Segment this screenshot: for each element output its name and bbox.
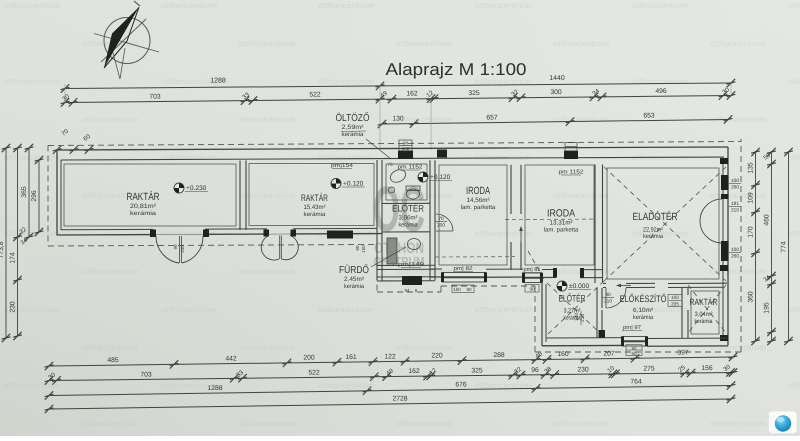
svg-text:lam. parketta: lam. parketta [461, 204, 496, 211]
svg-text:657: 657 [486, 114, 498, 121]
svg-text:1288: 1288 [210, 78, 226, 85]
svg-text:15,43m²: 15,43m² [304, 204, 326, 211]
svg-text:kerámia: kerámia [304, 211, 327, 218]
svg-text:200: 200 [437, 223, 445, 229]
svg-text:2,45m²: 2,45m² [344, 276, 364, 283]
svg-text:IRODA: IRODA [547, 208, 575, 220]
svg-text:94: 94 [404, 288, 410, 293]
svg-text:1440: 1440 [549, 75, 565, 82]
svg-text:109: 109 [748, 192, 755, 204]
svg-text:288: 288 [493, 352, 505, 359]
svg-text:325: 325 [468, 90, 480, 97]
svg-text:205: 205 [671, 302, 679, 308]
svg-text:60: 60 [355, 245, 360, 251]
svg-text:161: 161 [345, 354, 357, 361]
svg-text:210: 210 [731, 208, 739, 214]
svg-text:150: 150 [453, 287, 461, 292]
svg-text:kerámia: kerámia [344, 283, 365, 290]
svg-text:442: 442 [225, 355, 237, 362]
svg-text:260: 260 [731, 254, 739, 260]
svg-text:162: 162 [406, 91, 418, 98]
svg-text:90: 90 [529, 287, 535, 292]
svg-text:lam. parketta: lam. parketta [544, 227, 579, 234]
svg-text:14,56m²: 14,56m² [466, 197, 489, 204]
svg-text:296: 296 [31, 190, 38, 202]
svg-text:ELADÓTÉR: ELADÓTÉR [633, 210, 678, 223]
svg-text:397: 397 [677, 349, 689, 356]
svg-text:300: 300 [550, 89, 562, 96]
svg-text:pm| 82: pm| 82 [454, 265, 473, 272]
svg-text:230: 230 [577, 366, 589, 373]
svg-text:pm| 81: pm| 81 [524, 266, 541, 273]
svg-text:pm 1152: pm 1152 [398, 165, 423, 171]
svg-text:703: 703 [140, 371, 152, 378]
svg-text:496: 496 [655, 88, 667, 95]
svg-text:182: 182 [402, 146, 410, 151]
svg-text:150: 150 [361, 245, 366, 253]
svg-text:460: 460 [764, 214, 771, 226]
svg-text:275: 275 [643, 365, 655, 372]
svg-text:ÖLTÖZŐ: ÖLTÖZŐ [336, 112, 370, 124]
svg-text:210: 210 [604, 299, 612, 305]
svg-text:6,10m²: 6,10m² [633, 307, 653, 314]
svg-text:90: 90 [466, 287, 472, 292]
svg-text:75: 75 [387, 162, 393, 167]
svg-text:kerámia: kerámia [633, 314, 654, 321]
svg-text:200: 200 [303, 354, 315, 361]
svg-text:325: 325 [471, 367, 483, 374]
svg-text:162: 162 [408, 368, 420, 375]
svg-text:3,27m²: 3,27m² [564, 308, 581, 315]
svg-text:130: 130 [392, 116, 404, 123]
svg-text:653: 653 [643, 112, 655, 119]
svg-text:ELŐKÉSZÍTŐ: ELŐKÉSZÍTŐ [620, 293, 667, 305]
svg-text:20,81m²: 20,81m² [130, 203, 156, 210]
svg-text:3,06m²: 3,06m² [399, 215, 418, 222]
svg-text:pm|154: pm|154 [331, 162, 353, 169]
svg-text:pm 1152: pm 1152 [559, 170, 584, 176]
svg-text:RAKTÁR: RAKTÁR [690, 297, 718, 307]
svg-text:195: 195 [764, 302, 771, 314]
svg-text:FÜRDŐ: FÜRDŐ [339, 264, 369, 276]
svg-text:96: 96 [531, 367, 539, 374]
svg-text:220: 220 [431, 353, 443, 360]
svg-text:IRODA: IRODA [466, 185, 490, 197]
svg-text:135: 135 [748, 162, 755, 174]
svg-text:60: 60 [631, 351, 637, 356]
svg-text:240: 240 [180, 245, 185, 253]
svg-text:kerámia: kerámia [564, 315, 582, 322]
svg-text:94: 94 [403, 141, 409, 146]
svg-text:230: 230 [10, 301, 17, 313]
svg-text:773,8: 773,8 [0, 241, 5, 258]
svg-text:pm| 97: pm| 97 [623, 324, 641, 331]
svg-text:ELŐTÉR: ELŐTÉR [392, 203, 424, 215]
svg-text:2728: 2728 [392, 396, 407, 403]
svg-text:2,59m²: 2,59m² [342, 124, 364, 131]
svg-text:1288: 1288 [207, 385, 222, 392]
svg-text:+0.230: +0.230 [186, 185, 207, 192]
svg-text:122: 122 [384, 353, 396, 360]
svg-text:pm|149: pm|149 [398, 261, 424, 268]
svg-text:RAKTÁR: RAKTÁR [301, 192, 328, 204]
svg-text:485: 485 [107, 357, 119, 364]
svg-text:156: 156 [701, 365, 713, 372]
svg-text:703: 703 [149, 93, 161, 100]
svg-text:kerámia: kerámia [695, 318, 714, 325]
svg-text:207: 207 [603, 350, 615, 357]
svg-text:174: 174 [10, 252, 17, 264]
svg-text:kerámia: kerámia [130, 210, 157, 217]
svg-text:ELŐTÉR: ELŐTÉR [559, 293, 586, 305]
svg-text:360: 360 [748, 291, 755, 303]
svg-text:3,04m²: 3,04m² [695, 311, 713, 318]
svg-text:170: 170 [748, 226, 755, 238]
svg-text:kerámia: kerámia [399, 222, 419, 229]
svg-text:676: 676 [455, 381, 467, 388]
svg-text:22,92m²: 22,92m² [643, 227, 663, 234]
svg-text:RAKTÁR: RAKTÁR [127, 190, 160, 203]
svg-text:522: 522 [309, 92, 321, 99]
svg-text:kerámia: kerámia [342, 131, 365, 138]
svg-text:522: 522 [308, 369, 320, 376]
svg-text:365: 365 [21, 186, 28, 198]
svg-text:±0.000: ±0.000 [569, 283, 589, 290]
svg-text:+0.120: +0.120 [430, 174, 451, 181]
svg-text:260: 260 [731, 185, 739, 191]
svg-text:90: 90 [173, 244, 178, 250]
svg-text:13,31m²: 13,31m² [549, 220, 572, 227]
svg-text:Alaprajz M 1:100: Alaprajz M 1:100 [386, 60, 527, 79]
svg-text:774: 774 [781, 241, 788, 253]
svg-text:+0.120: +0.120 [343, 181, 364, 188]
svg-text:kerámia: kerámia [643, 233, 664, 240]
svg-text:764: 764 [630, 379, 642, 386]
